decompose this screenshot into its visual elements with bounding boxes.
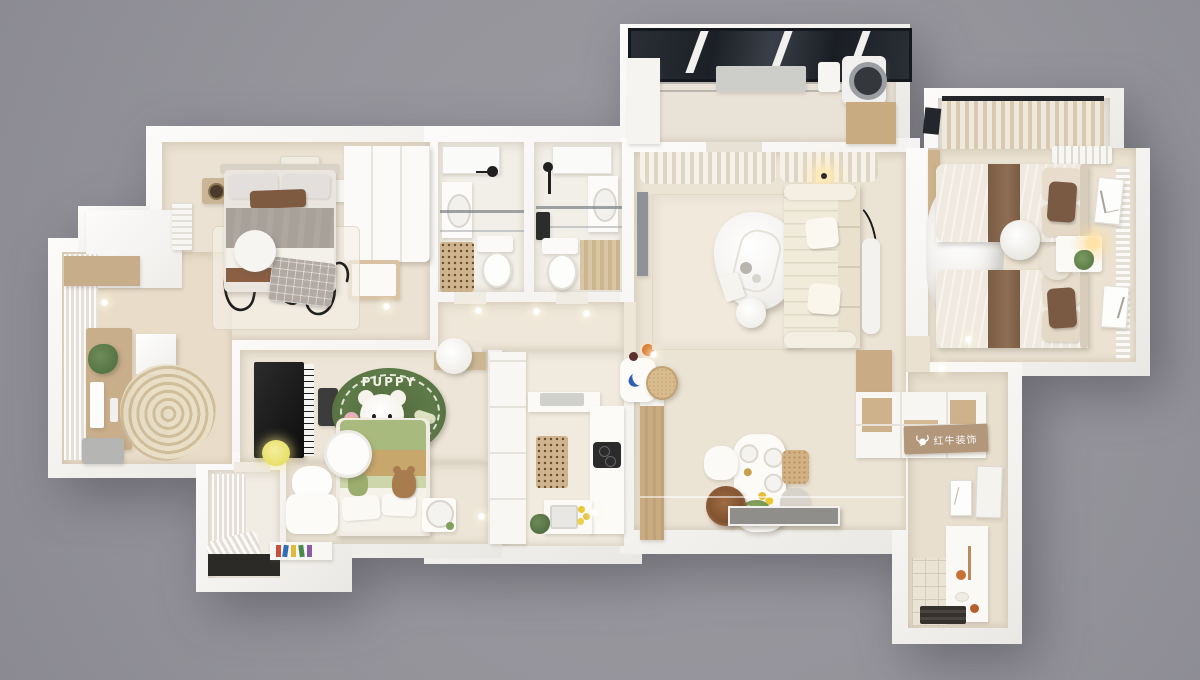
kids-canopy-disc	[324, 430, 372, 478]
bath1-shower-head	[487, 166, 498, 177]
study-printer	[82, 438, 124, 464]
puppy-rug-text: PUPPY	[332, 375, 446, 389]
master-clock-decor	[208, 183, 225, 200]
dining-floor-light-line	[640, 496, 904, 498]
door-opening-bath1	[454, 292, 486, 304]
dining-plate-3	[764, 474, 783, 493]
bed2-brown-cushion	[1047, 287, 1078, 329]
bath2-wood-slat-floor	[580, 240, 620, 290]
sofa-pillow-1	[805, 216, 840, 249]
kitchen-fridge-wood-column	[640, 398, 664, 540]
kitchen-cooktop	[593, 442, 621, 468]
bath1-patterned-mat	[440, 242, 474, 292]
kitchen-tall-cabinets	[490, 352, 526, 544]
kids-green-cup	[446, 522, 454, 530]
floorplan-render: PUPPY	[0, 0, 1200, 680]
downlight	[964, 335, 973, 344]
kids-round-table	[436, 338, 472, 374]
bath1-glass-partition-2	[440, 230, 524, 232]
bath2-dark-shelf	[536, 212, 550, 240]
kitchen-lemon-1	[578, 506, 585, 513]
cloud-table-cup-1	[740, 262, 752, 274]
washer-door	[849, 62, 887, 100]
kids-yellow-lamp	[262, 440, 290, 466]
glazing-mullion-1	[685, 31, 708, 73]
sofa-armrest-bottom	[784, 332, 856, 348]
kitchen-lemon-3	[577, 518, 584, 525]
laundry-drying-rack-panel	[716, 66, 806, 92]
watermark: 红牛装饰	[904, 424, 989, 455]
dining-plate-2	[763, 448, 783, 468]
master-bed	[224, 164, 336, 292]
dining-plate-1	[739, 444, 758, 463]
cubby-seam-v	[900, 392, 902, 458]
kitchen-hood	[540, 393, 584, 406]
bed1-headboard	[1080, 164, 1088, 242]
downlight	[582, 309, 591, 318]
kids-teddy-bear	[392, 470, 416, 498]
study-keyboard	[110, 398, 118, 422]
downlight	[937, 364, 946, 373]
dining-gray-bench	[728, 506, 840, 526]
art1-sketch	[1100, 188, 1119, 214]
entry-art-sketch	[954, 487, 968, 507]
teddy-ear-right	[407, 466, 415, 474]
study-wood-shelf	[64, 256, 140, 286]
living-side-panel	[862, 238, 880, 334]
kids-piano-keys	[304, 364, 314, 456]
bed2-brown-runner	[988, 270, 1020, 348]
bedroom2-round-table	[1000, 220, 1040, 260]
living-curtain-left	[640, 152, 776, 184]
teddy-ear-left	[393, 466, 401, 474]
book-yellow	[291, 545, 296, 557]
entry-door-mat	[920, 606, 966, 624]
master-round-side-table	[234, 230, 276, 272]
master-bed-lumbar-pillow	[250, 189, 307, 209]
kitchen-sink-basin	[550, 505, 578, 529]
laundry-cabinet-left	[628, 58, 660, 144]
sofa-armrest-top	[784, 184, 856, 200]
downlight	[532, 307, 541, 316]
cubby-wood-cell-1	[862, 398, 892, 432]
bath2-basin	[593, 188, 617, 222]
downlight	[100, 298, 109, 307]
downlight	[474, 306, 483, 315]
sofa-pillow-2	[807, 283, 841, 316]
bath2-skylight	[552, 146, 612, 174]
door-opening-bedroom2	[906, 336, 930, 372]
cooktop-ring-2	[605, 456, 616, 467]
kitchen-lemon-2	[583, 513, 590, 520]
living-floor-lamp-cap	[821, 173, 827, 179]
entry-door-panel	[975, 466, 1003, 519]
watermark-text: 红牛装饰	[933, 430, 977, 447]
washing-machine	[842, 56, 886, 104]
downlight	[382, 302, 391, 311]
book-blue	[282, 545, 289, 558]
bed1-brown-cushion	[1047, 181, 1078, 223]
kids-nightstand	[422, 498, 456, 532]
bay-window-frame-corner	[923, 107, 942, 135]
door-opening-kids-balcony	[234, 462, 270, 472]
bay-window-blinds	[942, 96, 1104, 149]
entry-wall-art	[950, 480, 972, 516]
dining-chair-rattan	[782, 450, 809, 484]
living-small-stool	[736, 298, 766, 328]
master-bed-plaid-throw	[268, 256, 337, 307]
downlight	[477, 512, 486, 521]
bull-icon	[914, 433, 929, 447]
bath2-vanity	[588, 176, 618, 232]
living-tv-panel	[637, 192, 648, 276]
kids-book-shelf	[270, 542, 332, 560]
book-red	[276, 545, 281, 557]
bath1-toilet	[477, 236, 513, 252]
shelf-wood-stick	[968, 546, 971, 580]
shelf-white-bowl	[955, 592, 969, 602]
entry-wood-cabinet-top	[856, 350, 892, 392]
bedroom2-wall-art-2	[1101, 285, 1130, 329]
bath2-glass-partition	[536, 206, 622, 209]
master-ac-unit	[172, 202, 192, 250]
kitchen-patterned-mat	[536, 436, 568, 488]
bar-dark-decor	[629, 352, 638, 361]
bedroom2-wall-art-1	[1094, 177, 1125, 225]
kitchen-sink-unit	[544, 500, 592, 534]
bar-rattan-tray-table	[646, 366, 678, 400]
dining-candle	[744, 468, 752, 476]
sofa-seat	[784, 184, 840, 348]
shelf-orange-pot	[970, 604, 979, 613]
dining-chair-white-top	[704, 446, 738, 480]
downlight	[590, 508, 599, 517]
book-purple	[307, 545, 312, 557]
book-green	[298, 545, 305, 558]
laundry-wood-counter	[846, 102, 896, 144]
bedroom2-ac-unit	[1052, 146, 1112, 164]
door-opening-bath2	[556, 292, 588, 304]
shelf-orange-vase	[956, 570, 966, 580]
bath1-glass-partition	[440, 210, 524, 213]
kids-desk	[286, 494, 338, 534]
bath2-toilet-bowl	[547, 254, 577, 290]
cloud-table-cup-2	[752, 274, 761, 283]
bed2-headboard	[1080, 270, 1088, 348]
bath1-toilet-bowl	[482, 252, 512, 288]
kids-bed-pillow-left	[341, 495, 381, 522]
downlight	[649, 350, 658, 359]
bath2-toilet	[542, 238, 578, 254]
art2-sketch	[1106, 294, 1125, 319]
laundry-basin	[818, 62, 840, 92]
study-monitor	[90, 382, 104, 428]
bedroom2-bed-2	[936, 270, 1088, 348]
bath2-shower-pipe	[548, 170, 551, 194]
